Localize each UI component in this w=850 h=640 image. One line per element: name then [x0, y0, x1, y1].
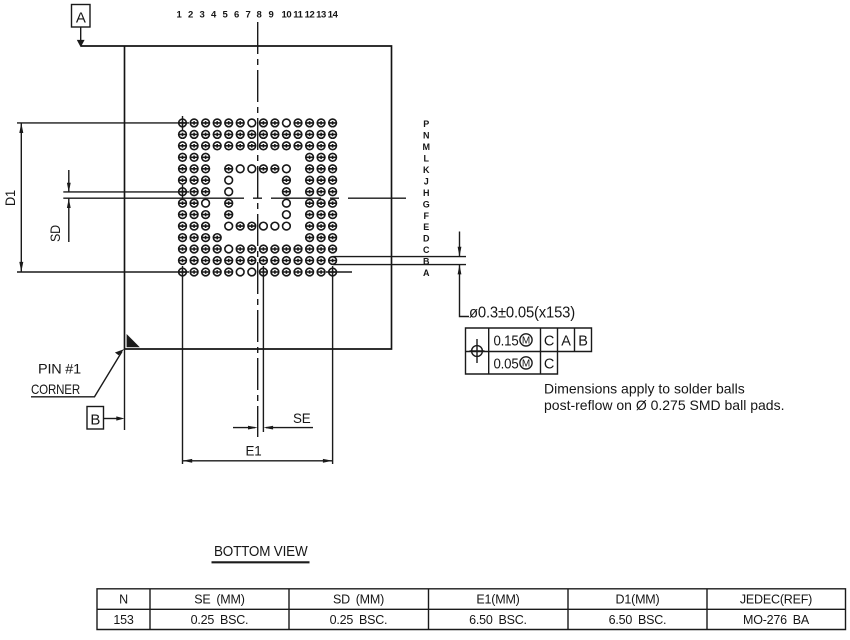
svg-text:6.50 BSC.: 6.50 BSC.: [469, 613, 527, 627]
svg-text:8: 8: [257, 9, 262, 20]
svg-text:F: F: [423, 211, 429, 221]
svg-text:12: 12: [305, 9, 315, 20]
svg-text:0.25 BSC.: 0.25 BSC.: [191, 613, 249, 627]
svg-text:C: C: [544, 333, 554, 349]
svg-text:post-reflow on Ø 0.275 SMD bal: post-reflow on Ø 0.275 SMD ball pads.: [544, 397, 784, 413]
svg-text:D: D: [423, 234, 430, 244]
svg-text:D1(MM): D1(MM): [616, 593, 660, 607]
svg-text:7: 7: [246, 9, 251, 20]
svg-text:C: C: [544, 356, 554, 372]
svg-text:2: 2: [188, 9, 193, 20]
svg-text:L: L: [423, 153, 429, 163]
svg-text:B: B: [578, 333, 587, 349]
svg-text:H: H: [423, 188, 429, 198]
svg-text:SD: SD: [47, 225, 63, 242]
svg-text:13: 13: [316, 9, 326, 20]
svg-text:A: A: [561, 333, 571, 349]
svg-text:M: M: [422, 142, 429, 152]
svg-text:M: M: [522, 336, 530, 347]
svg-text:6: 6: [234, 9, 239, 20]
svg-text:A: A: [76, 9, 86, 26]
svg-text:SE (MM): SE (MM): [194, 593, 244, 607]
svg-text:G: G: [423, 199, 430, 209]
svg-text:0.25 BSC.: 0.25 BSC.: [330, 613, 388, 627]
svg-text:3: 3: [200, 9, 205, 20]
svg-text:N: N: [119, 593, 128, 607]
svg-text:D1: D1: [2, 190, 18, 206]
svg-text:JEDEC(REF): JEDEC(REF): [740, 593, 812, 607]
svg-text:SE: SE: [293, 410, 311, 426]
svg-text:0.15: 0.15: [494, 333, 519, 349]
svg-text:9: 9: [269, 9, 274, 20]
svg-text:B: B: [90, 411, 100, 428]
svg-text:M: M: [522, 359, 530, 370]
svg-text:6.50 BSC.: 6.50 BSC.: [609, 613, 667, 627]
svg-text:1: 1: [177, 9, 183, 20]
svg-text:MO-276 BA: MO-276 BA: [743, 613, 810, 627]
svg-text:E: E: [423, 222, 429, 232]
svg-text:14: 14: [328, 9, 339, 20]
svg-text:P: P: [423, 119, 429, 129]
svg-text:ø0.3±0.05(x153): ø0.3±0.05(x153): [469, 305, 575, 322]
svg-text:10: 10: [282, 9, 292, 20]
svg-text:E1(MM): E1(MM): [476, 593, 519, 607]
svg-text:4: 4: [211, 9, 217, 20]
svg-text:11: 11: [293, 9, 303, 20]
svg-text:BOTTOM VIEW: BOTTOM VIEW: [214, 543, 308, 560]
svg-text:E1: E1: [246, 443, 262, 459]
svg-text:C: C: [423, 245, 430, 255]
svg-text:Dimensions apply to solder bal: Dimensions apply to solder balls: [544, 381, 745, 397]
svg-text:N: N: [423, 131, 429, 141]
svg-text:PIN #1: PIN #1: [38, 361, 81, 377]
svg-text:K: K: [423, 165, 430, 175]
svg-text:5: 5: [223, 9, 229, 20]
svg-text:A: A: [423, 268, 430, 278]
svg-text:153: 153: [113, 613, 134, 627]
svg-text:CORNER: CORNER: [31, 381, 80, 397]
svg-text:SD (MM): SD (MM): [333, 593, 384, 607]
svg-text:0.05: 0.05: [494, 356, 519, 372]
svg-text:J: J: [424, 176, 429, 186]
